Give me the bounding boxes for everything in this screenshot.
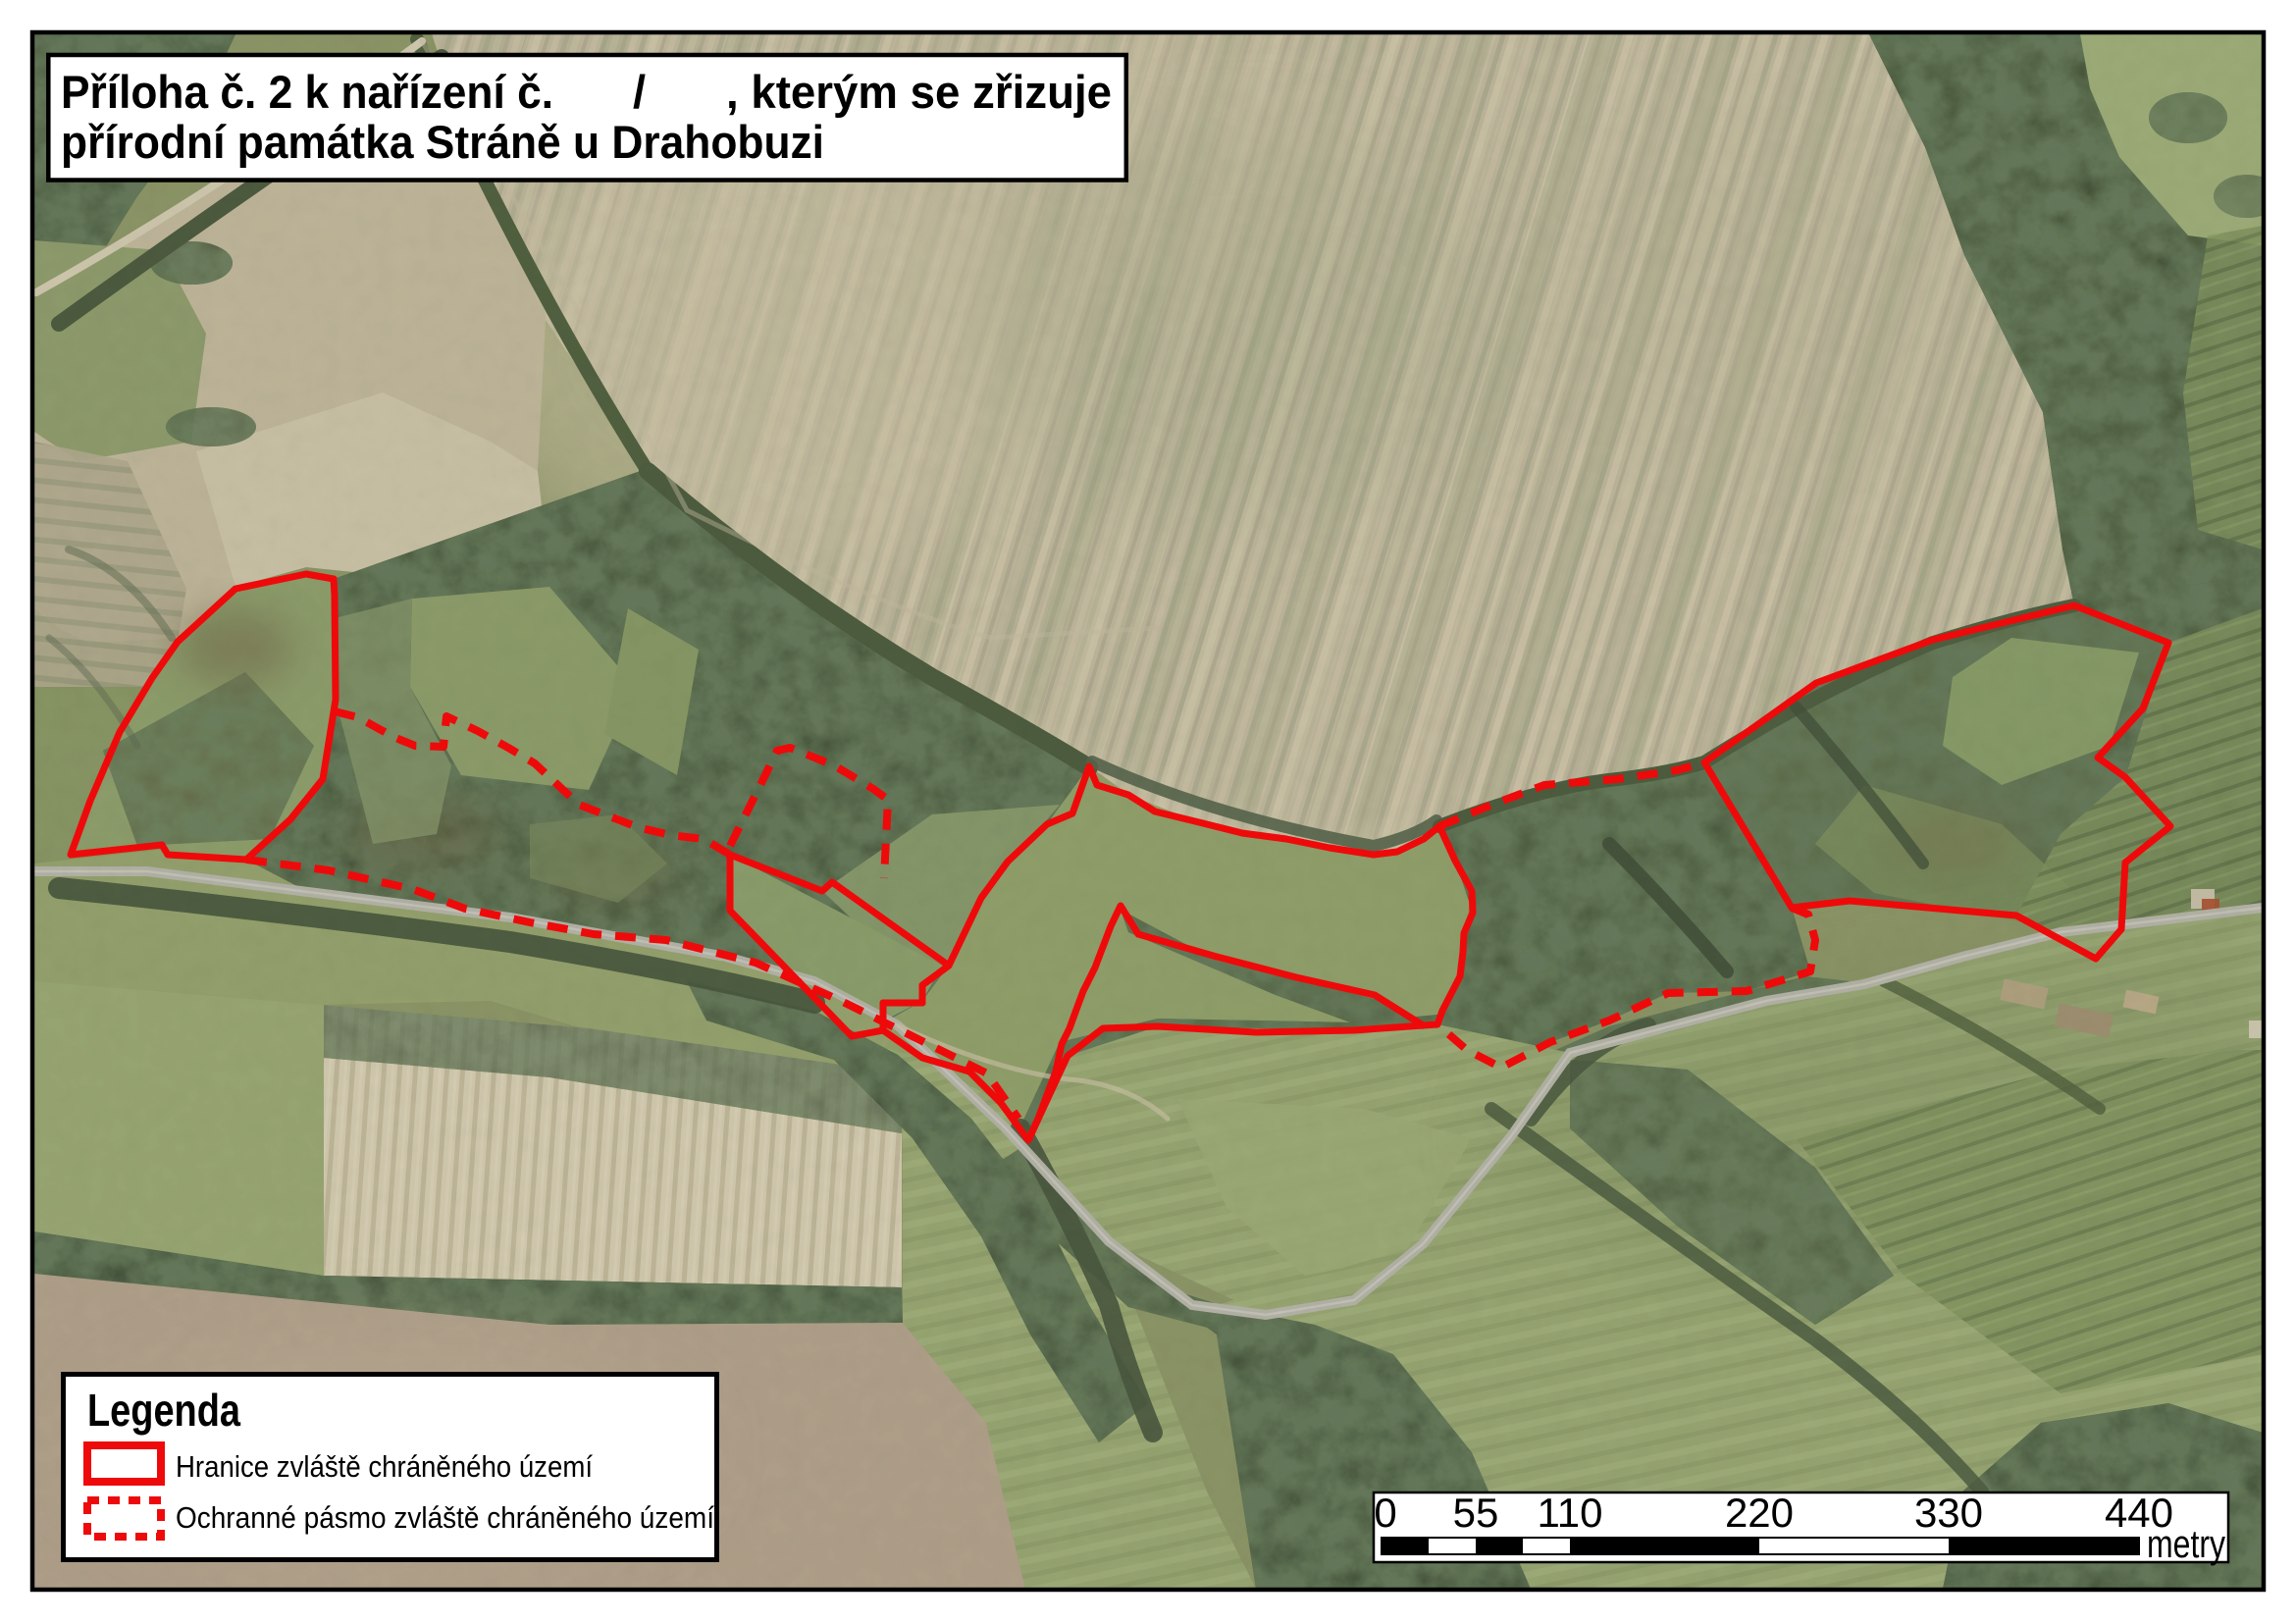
svg-text:metry: metry [2147,1523,2225,1566]
svg-text:Legenda: Legenda [87,1385,240,1436]
svg-text:0: 0 [1374,1490,1396,1536]
svg-text:Příloha č. 2 k nařízení č.: Příloha č. 2 k nařízení č. [61,66,553,118]
svg-text:220: 220 [1725,1490,1794,1536]
svg-text:, kterým se zřizuje: , kterým se zřizuje [726,66,1112,118]
svg-text:/: / [633,66,646,118]
svg-text:55: 55 [1453,1490,1499,1536]
svg-text:110: 110 [1538,1490,1603,1536]
svg-text:Ochranné pásmo zvláště chráněn: Ochranné pásmo zvláště chráněného území [176,1500,714,1535]
svg-text:Hranice zvláště chráněného úze: Hranice zvláště chráněného území [176,1449,593,1484]
svg-text:330: 330 [1914,1490,1983,1536]
svg-text:přírodní památka Stráně u Drah: přírodní památka Stráně u Drahobuzi [61,116,824,168]
